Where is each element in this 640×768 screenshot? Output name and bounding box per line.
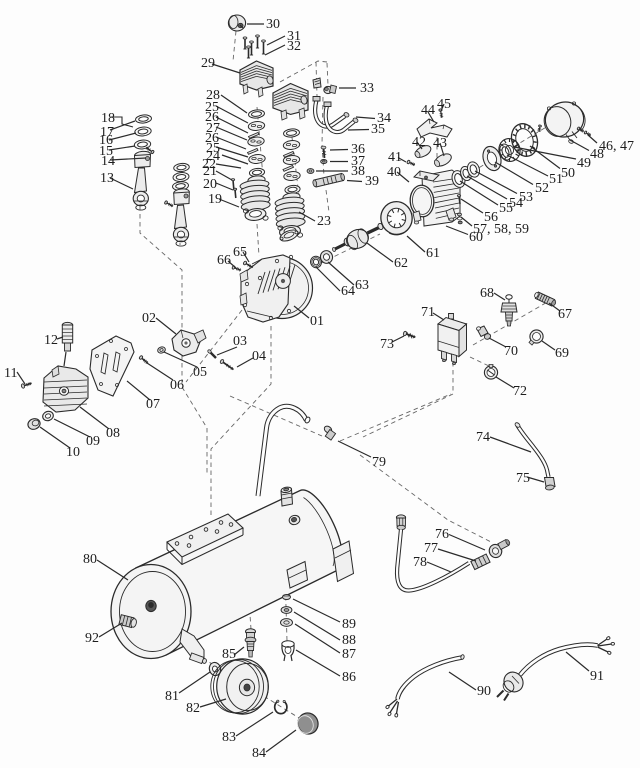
svg-text:82: 82 xyxy=(186,701,200,716)
svg-text:92: 92 xyxy=(85,631,99,646)
svg-text:43: 43 xyxy=(433,136,447,151)
svg-text:32: 32 xyxy=(287,39,301,54)
svg-text:73: 73 xyxy=(380,337,394,352)
svg-text:69: 69 xyxy=(555,346,569,361)
svg-text:71: 71 xyxy=(421,305,435,320)
svg-text:02: 02 xyxy=(142,311,156,326)
svg-text:13: 13 xyxy=(100,171,114,186)
svg-text:45: 45 xyxy=(437,97,451,112)
svg-text:90: 90 xyxy=(477,684,491,699)
svg-text:33: 33 xyxy=(360,81,374,96)
svg-text:67: 67 xyxy=(558,307,572,322)
svg-text:76: 76 xyxy=(435,527,449,542)
svg-text:63: 63 xyxy=(355,278,369,293)
svg-text:72: 72 xyxy=(513,384,527,399)
svg-text:65: 65 xyxy=(233,245,247,260)
svg-text:64: 64 xyxy=(341,284,355,299)
svg-text:14: 14 xyxy=(101,154,115,169)
svg-text:80: 80 xyxy=(83,552,97,567)
svg-text:52: 52 xyxy=(535,181,549,196)
svg-text:23: 23 xyxy=(317,214,331,229)
svg-text:84: 84 xyxy=(252,746,266,761)
svg-text:61: 61 xyxy=(426,246,440,261)
svg-text:20: 20 xyxy=(203,177,217,192)
svg-text:83: 83 xyxy=(222,730,236,745)
svg-text:19: 19 xyxy=(208,192,222,207)
svg-text:70: 70 xyxy=(504,344,518,359)
svg-text:38: 38 xyxy=(351,164,365,179)
svg-text:40: 40 xyxy=(387,165,401,180)
svg-text:77: 77 xyxy=(424,541,438,556)
svg-text:87: 87 xyxy=(342,647,356,662)
svg-text:04: 04 xyxy=(252,349,266,364)
svg-text:18: 18 xyxy=(101,111,115,126)
svg-text:05: 05 xyxy=(193,365,207,380)
svg-text:44: 44 xyxy=(421,103,435,118)
svg-text:06: 06 xyxy=(170,378,184,393)
svg-text:55: 55 xyxy=(499,201,513,216)
svg-text:46, 47: 46, 47 xyxy=(599,139,634,154)
svg-text:74: 74 xyxy=(476,430,490,445)
svg-text:08: 08 xyxy=(106,426,120,441)
svg-text:60: 60 xyxy=(469,230,483,245)
svg-text:50: 50 xyxy=(561,166,575,181)
svg-text:11: 11 xyxy=(4,366,17,381)
svg-text:75: 75 xyxy=(516,471,530,486)
svg-text:62: 62 xyxy=(394,256,408,271)
svg-text:68: 68 xyxy=(480,286,494,301)
svg-text:39: 39 xyxy=(365,174,379,189)
svg-text:09: 09 xyxy=(86,434,100,449)
svg-text:01: 01 xyxy=(310,314,324,329)
svg-text:03: 03 xyxy=(233,334,247,349)
svg-text:35: 35 xyxy=(371,122,385,137)
svg-text:41: 41 xyxy=(388,150,402,165)
svg-text:42: 42 xyxy=(412,135,426,150)
svg-text:10: 10 xyxy=(66,445,80,460)
svg-text:30: 30 xyxy=(266,17,280,32)
svg-text:81: 81 xyxy=(165,689,179,704)
svg-text:29: 29 xyxy=(201,56,215,71)
svg-text:88: 88 xyxy=(342,633,356,648)
svg-text:07: 07 xyxy=(146,397,160,412)
svg-text:91: 91 xyxy=(590,669,604,684)
svg-text:49: 49 xyxy=(577,156,591,171)
svg-text:12: 12 xyxy=(44,333,58,348)
svg-text:48: 48 xyxy=(590,147,604,162)
svg-text:89: 89 xyxy=(342,617,356,632)
svg-text:79: 79 xyxy=(372,455,386,470)
svg-text:51: 51 xyxy=(549,172,563,187)
svg-text:78: 78 xyxy=(413,555,427,570)
svg-text:86: 86 xyxy=(342,670,356,685)
svg-text:66: 66 xyxy=(217,253,231,268)
